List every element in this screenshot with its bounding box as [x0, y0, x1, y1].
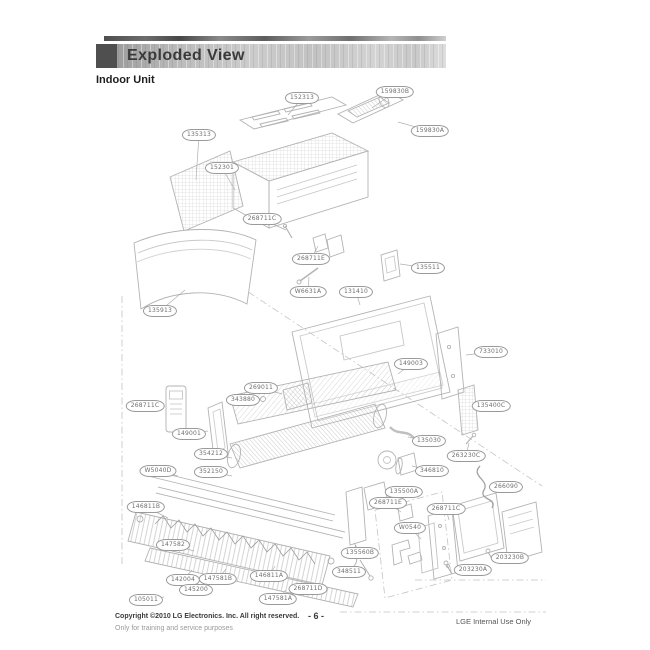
page-title: Exploded View: [127, 44, 245, 68]
small-brackets: [283, 224, 400, 284]
air-guide-part: [208, 402, 228, 458]
line-art: [122, 91, 546, 612]
footer-page-number: - 6 -: [308, 611, 324, 621]
front-panel-part: [134, 229, 256, 309]
vane-motor-part: [338, 91, 403, 123]
header-square-icon: [96, 44, 117, 68]
front-grille-part: [233, 133, 368, 228]
drain-and-sensor-parts: [346, 427, 428, 580]
exploded-view-diagram: [0, 0, 650, 650]
air-filter-part: [170, 151, 243, 231]
footer-internal-note: LGE Internal Use Only: [456, 617, 531, 626]
louver-strip-part: [458, 385, 478, 435]
control-box-parts: [418, 466, 542, 579]
footer-training-note: Only for training and service purposes: [115, 625, 233, 632]
remote-control-part: [166, 386, 186, 432]
discharge-vane-part: [240, 97, 346, 129]
evaporator-fan-parts: [225, 362, 417, 475]
footer-copyright: Copyright ©2010 LG Electronics. Inc. All…: [115, 613, 299, 620]
base-grille-parts: [128, 512, 358, 607]
